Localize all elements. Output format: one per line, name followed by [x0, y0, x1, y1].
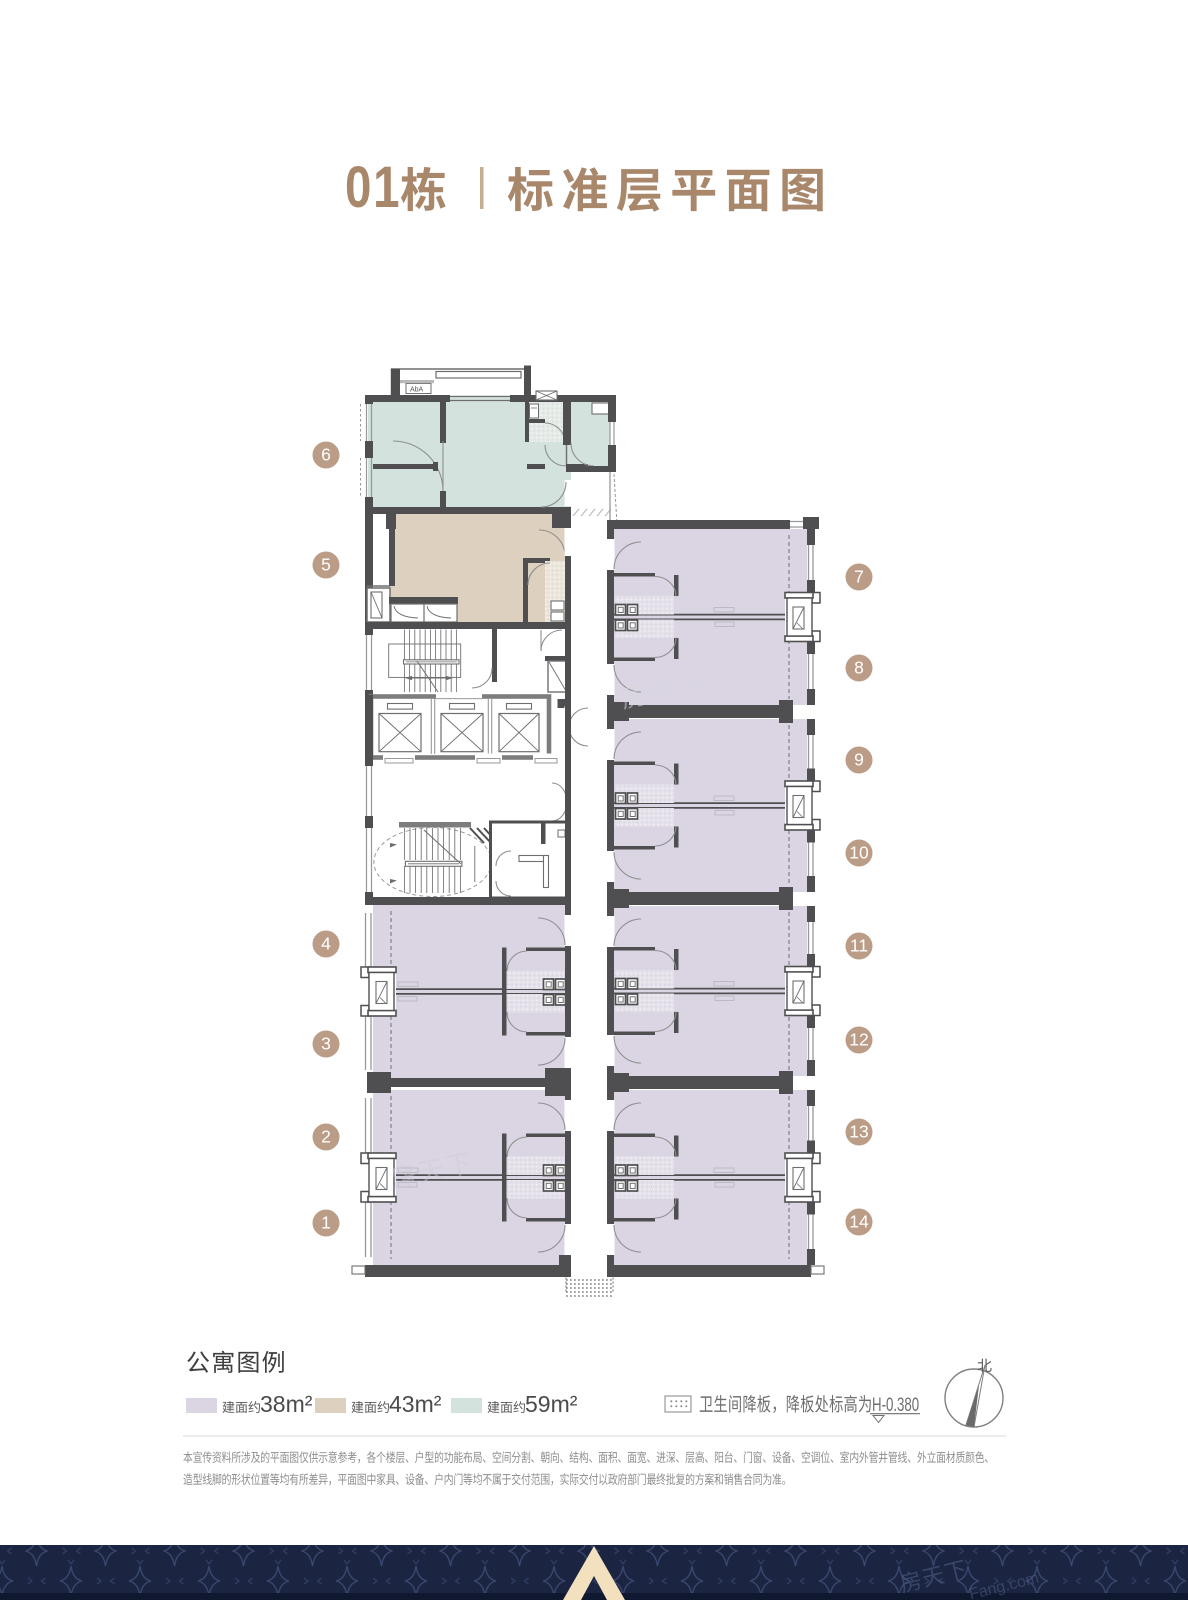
svg-text:5: 5: [321, 555, 331, 575]
svg-text:1: 1: [321, 1213, 331, 1233]
svg-text:10: 10: [849, 843, 869, 863]
svg-text:13: 13: [849, 1122, 868, 1142]
svg-text:11: 11: [850, 936, 868, 956]
svg-text:12: 12: [849, 1030, 868, 1050]
svg-text:7: 7: [854, 567, 864, 587]
svg-text:14: 14: [849, 1212, 869, 1232]
svg-text:3: 3: [321, 1034, 331, 1054]
svg-text:9: 9: [854, 750, 864, 770]
svg-text:H-0.380: H-0.380: [872, 1393, 919, 1415]
svg-text:2: 2: [321, 1127, 331, 1147]
svg-text:AbA: AbA: [410, 387, 424, 394]
svg-text:38m²: 38m²: [260, 1391, 313, 1417]
svg-text:6: 6: [321, 445, 331, 465]
svg-text:43m²: 43m²: [389, 1391, 442, 1417]
svg-text:4: 4: [321, 934, 331, 954]
svg-text:8: 8: [854, 658, 864, 678]
svg-text:59m²: 59m²: [525, 1391, 578, 1417]
svg-text:01: 01: [345, 156, 401, 221]
